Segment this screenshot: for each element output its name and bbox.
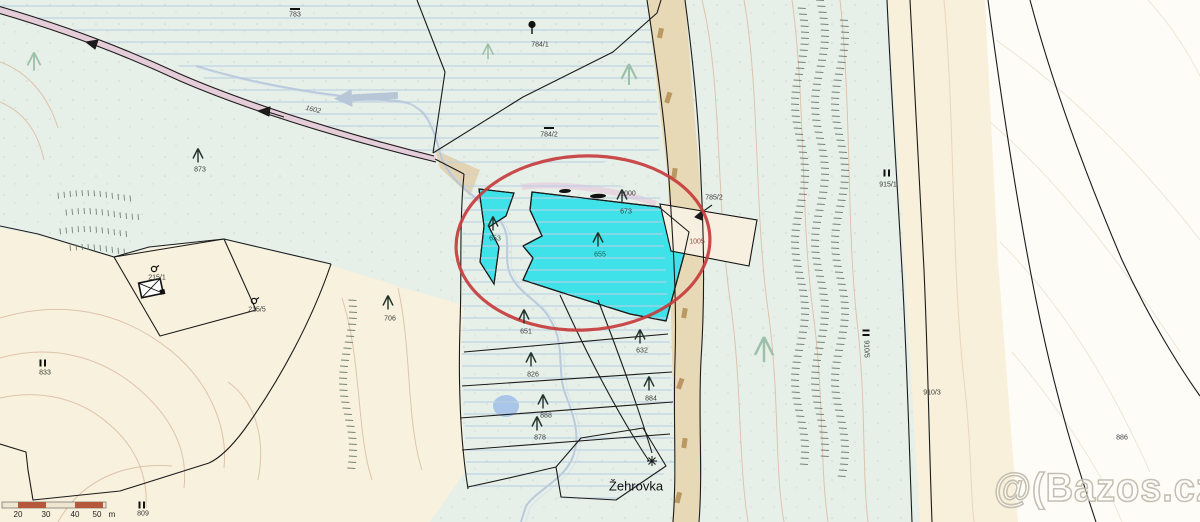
parcel-label-673: 673 bbox=[620, 209, 632, 216]
conifer-tree-icon bbox=[381, 295, 395, 316]
parcel-label-653: 653 bbox=[489, 236, 501, 243]
parcel-label-651: 651 bbox=[520, 329, 532, 336]
conifer-tree-icon bbox=[642, 376, 656, 397]
parcel-label-910-5: 910/5 bbox=[863, 340, 870, 358]
conifer-tree-icon bbox=[486, 216, 500, 237]
parcel-label-915-1: 915/1 bbox=[879, 182, 897, 189]
scale-tick-label: 20 bbox=[14, 510, 23, 519]
deciduous-tree-icon bbox=[526, 20, 538, 40]
scale-tick-label: 50 bbox=[93, 510, 102, 519]
conifer-tree-pale-icon bbox=[25, 51, 43, 77]
conifer-tree-pale-icon bbox=[751, 335, 776, 369]
parcel-label-809: 809 bbox=[137, 511, 149, 518]
parcel-label-783: 783 bbox=[289, 12, 301, 19]
parcel-label-784-1: 784/1 bbox=[531, 42, 549, 49]
conifer-tree-icon bbox=[524, 352, 538, 373]
bazos-watermark: @(Bazos.cz bbox=[994, 466, 1200, 511]
scale-bar bbox=[2, 502, 106, 508]
parcel-label-833: 833 bbox=[39, 370, 51, 377]
parcel-label-785-2: 785/2 bbox=[705, 195, 723, 202]
scale-tick-label: 30 bbox=[42, 510, 51, 519]
star-icon bbox=[647, 453, 657, 471]
cadastral-map: 783784/1784/287310006736556531005785/291… bbox=[0, 0, 1200, 522]
conifer-tree-icon bbox=[591, 232, 605, 253]
scale-tick-label: 40 bbox=[71, 510, 80, 519]
parcel-label-215-1: 215/1 bbox=[148, 275, 166, 282]
double-bar-icon bbox=[857, 329, 875, 338]
conifer-tree-icon bbox=[536, 394, 550, 415]
stream-name-label: Žehrovka bbox=[609, 479, 663, 494]
parcel-label-1005: 1005 bbox=[689, 239, 705, 246]
parcel-label-886: 886 bbox=[1116, 435, 1128, 442]
parcel-label-884: 884 bbox=[645, 396, 657, 403]
parcel-label-215-5: 215/5 bbox=[248, 307, 266, 314]
map-canvas bbox=[0, 0, 1200, 522]
scale-unit-label: m bbox=[109, 510, 116, 519]
parcel-label-784-2: 784/2 bbox=[540, 132, 558, 139]
conifer-tree-pale-icon bbox=[619, 63, 640, 92]
parcel-label-1000: 1000 bbox=[620, 191, 636, 198]
parcel-label-878: 878 bbox=[534, 435, 546, 442]
conifer-tree-pale-icon bbox=[480, 43, 495, 66]
double-bar-icon bbox=[883, 164, 892, 182]
parcel-label-910-3: 910/3 bbox=[923, 390, 941, 397]
conifer-tree-icon bbox=[191, 148, 205, 169]
conifer-tree-icon bbox=[633, 329, 647, 350]
parcel-label-655: 655 bbox=[594, 252, 606, 259]
parcel-label-873: 873 bbox=[194, 167, 206, 174]
parcel-label-632: 632 bbox=[636, 348, 648, 355]
parcel-label-888: 888 bbox=[540, 413, 552, 420]
parcel-label-826: 826 bbox=[527, 372, 539, 379]
white-zone-far-right bbox=[985, 0, 1200, 522]
parcel-label-706: 706 bbox=[384, 316, 396, 323]
conifer-tree-icon bbox=[517, 309, 531, 330]
